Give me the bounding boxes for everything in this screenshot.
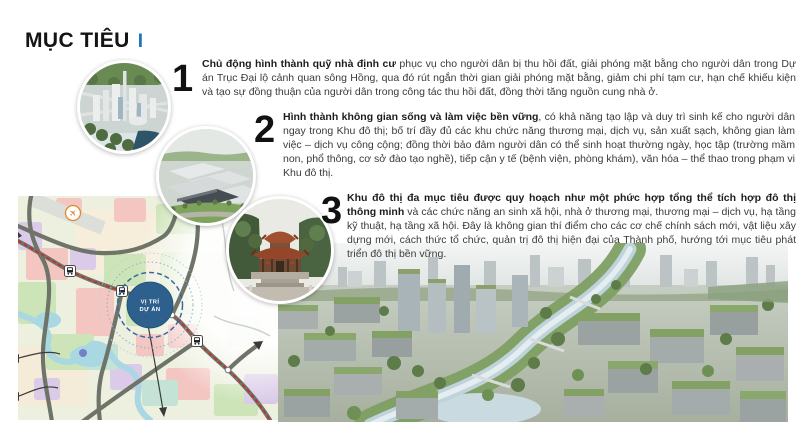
airplane-icon: ✈ [66,206,81,221]
objective-1-text: Chủ động hình thành quỹ nhà định cư phục… [202,57,796,99]
slide: MỤC TIÊUI [0,0,800,448]
objective-1-lead: Chủ động hình thành quỹ nhà định cư [202,58,396,70]
objective-3-body: và các chức năng an sinh xã hội, nhà ở t… [347,206,796,260]
map-blue-dot [79,349,87,357]
objective-2-number: 2 [254,111,275,149]
map-node [225,367,231,373]
objective-2-text: Hình thành không gian sống và làm việc b… [283,110,795,180]
objective-3-text: Khu đô thị đa mục tiêu được quy hoạch nh… [347,191,796,261]
page-title: MỤC TIÊUI [25,29,143,53]
train-station-icon [65,266,76,277]
train-station-icon [192,336,203,347]
title-accent-bar: I [138,31,144,52]
circle-image-temple [226,196,334,304]
objective-1-number: 1 [172,60,193,98]
masterplan-aerial-photo [278,243,788,422]
objective-2-lead: Hình thành không gian sống và làm việc b… [283,111,538,123]
circle-image-city-towers [77,60,171,154]
page-title-text: MỤC TIÊU [25,29,130,52]
project-label-line1: VỊ TRÍ [141,298,160,306]
objective-3-number: 3 [321,192,342,230]
project-label-line2: DỰ ÁN [140,306,161,313]
